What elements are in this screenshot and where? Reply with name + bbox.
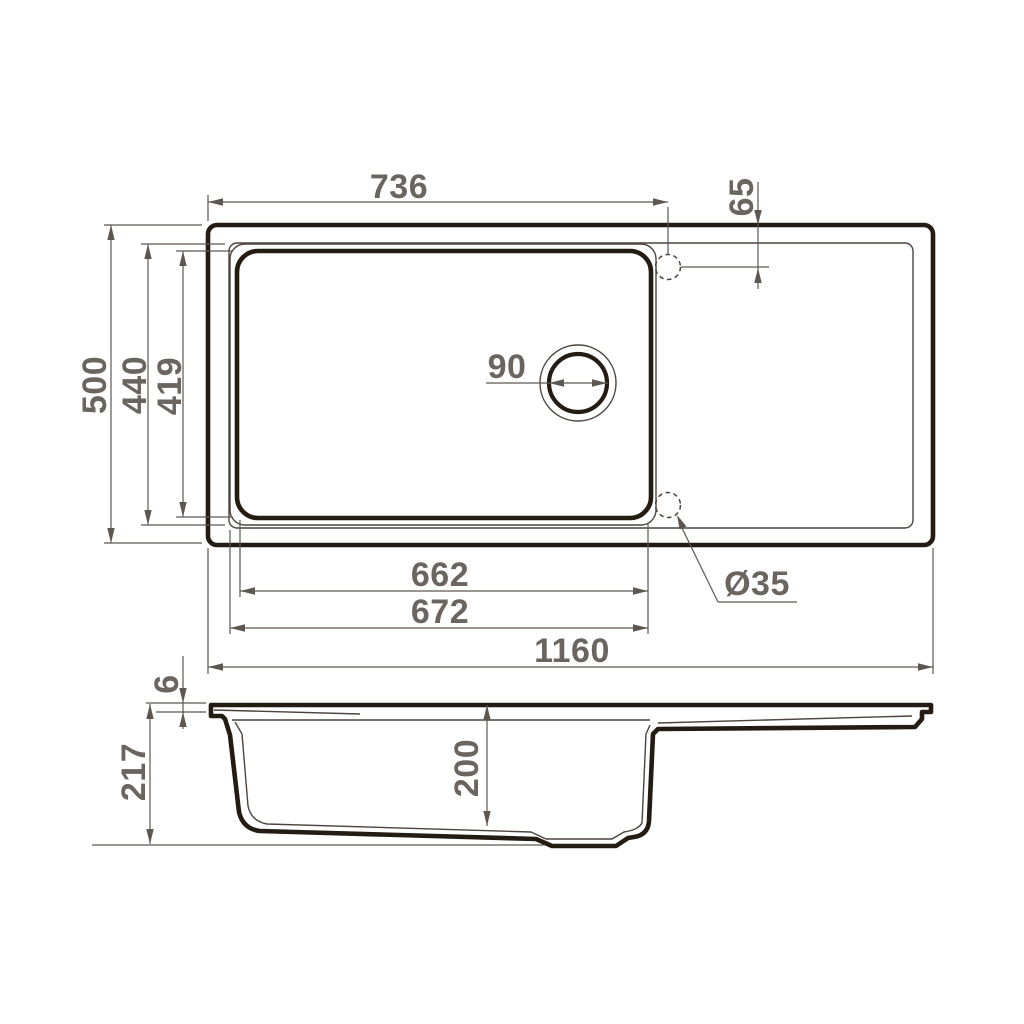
dimension-label: 1160	[534, 632, 610, 670]
arrowhead-left	[240, 587, 255, 594]
arrowhead-right	[633, 624, 648, 631]
arrowhead-top	[179, 251, 186, 266]
arrowhead-right	[653, 198, 668, 206]
dimension-label: 65	[723, 178, 761, 217]
dimension-label: 440	[116, 356, 154, 414]
arrowhead-bottom	[179, 502, 186, 517]
dimension-label: 200	[448, 739, 486, 797]
sink-technical-drawing: 736 65 500 440	[0, 0, 1024, 1024]
arrowhead-top	[107, 225, 114, 240]
arrowhead-top	[144, 244, 151, 259]
arrowhead-right	[918, 663, 933, 670]
dimension-label: 90	[488, 348, 527, 386]
arrowhead-bottom	[146, 829, 153, 844]
arrowhead-left	[208, 198, 223, 206]
dimension-label: 736	[370, 168, 428, 206]
dimension-label: 662	[411, 556, 469, 594]
arrowhead-bottom	[179, 712, 186, 727]
arrowhead-top	[146, 704, 153, 719]
drawing-canvas: 736 65 500 440	[0, 0, 1024, 1024]
dimension-6: 6	[146, 656, 206, 729]
arrowhead-bottom	[107, 528, 114, 543]
arrowhead-bottom	[144, 510, 151, 525]
arrowhead-left	[230, 624, 245, 631]
arrowhead-left	[208, 663, 223, 670]
dimension-label: 500	[76, 356, 114, 414]
sink-outer-outline	[208, 225, 933, 545]
dimension-label: 419	[151, 357, 189, 415]
dimension-label: Ø35	[724, 565, 790, 603]
dimension-label: 6	[148, 674, 186, 693]
side-view: 6 217 200	[92, 656, 931, 846]
sink-profile-outline	[211, 705, 931, 846]
top-view: 736 65 500 440	[76, 168, 933, 674]
dimension-label: 217	[115, 743, 153, 801]
dimension-1160: 1160	[208, 548, 933, 674]
dimension-label: 672	[411, 593, 469, 631]
arrowhead-right	[633, 587, 648, 594]
